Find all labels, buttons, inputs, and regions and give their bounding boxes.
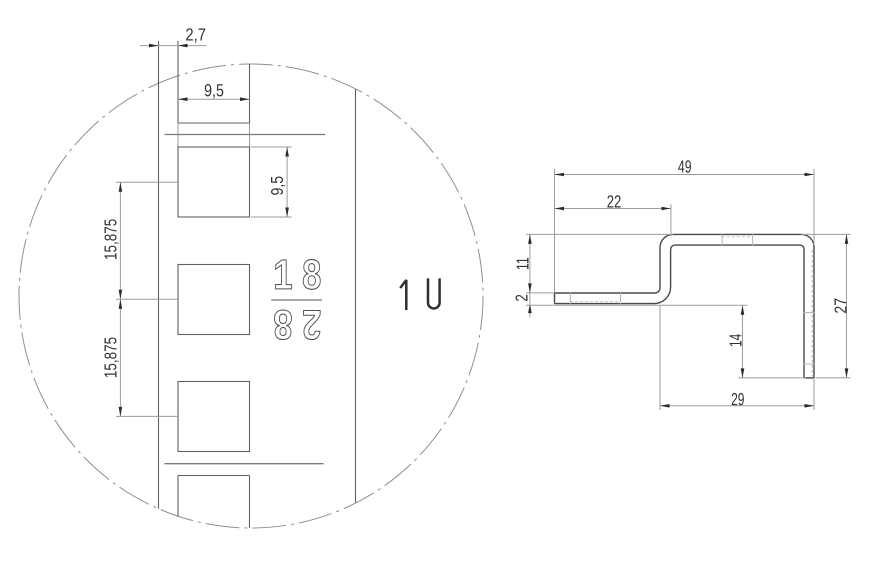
svg-text:2: 2 — [511, 294, 531, 302]
svg-text:22: 22 — [607, 191, 622, 211]
svg-text:49: 49 — [678, 156, 692, 176]
svg-text:2 8: 2 8 — [273, 302, 321, 349]
svg-text:29: 29 — [731, 389, 744, 409]
svg-text:15,875: 15,875 — [101, 337, 121, 378]
svg-text:15,875: 15,875 — [101, 219, 121, 260]
svg-text:1 8: 1 8 — [273, 251, 321, 298]
svg-text:2,7: 2,7 — [185, 24, 206, 44]
svg-text:9,5: 9,5 — [204, 80, 224, 100]
svg-text:9,5: 9,5 — [267, 176, 287, 196]
svg-text:11: 11 — [512, 257, 532, 270]
svg-text:14: 14 — [725, 334, 745, 347]
svg-text:27: 27 — [830, 298, 850, 314]
